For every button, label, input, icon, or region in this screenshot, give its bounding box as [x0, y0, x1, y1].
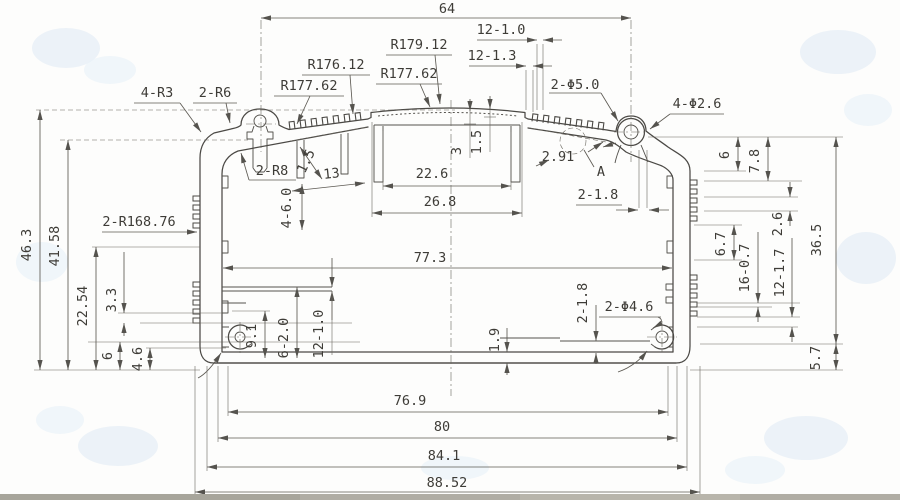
dim-label-3.3: 3.3 — [104, 288, 120, 312]
dim-label-slant-1.5: 1.5 — [294, 147, 319, 176]
dim-foot-5.7: 5.7 — [808, 344, 836, 370]
dim-label-77.3: 77.3 — [414, 250, 447, 266]
dim-label-12-1.3: 12-1.3 — [468, 48, 517, 64]
dim-label-84.1: 84.1 — [428, 448, 461, 464]
dim-slots-6-2.0: 6-2.0 — [276, 287, 297, 358]
dim-step-6-right: 6 — [717, 137, 738, 171]
dim-label-2-1.8-top: 2-1.8 — [578, 187, 619, 203]
dim-label-2-R168.76: 2-R168.76 — [102, 214, 175, 230]
engineering-drawing-page: 64 12-1.0 12-1.3 R179.12 R176.12 R177.62 — [0, 0, 900, 500]
scan-footer-strip — [0, 494, 900, 500]
dimensions-right: 6 7.8 2.6 36.5 5.7 6.7 16-0.7 — [648, 137, 843, 370]
detail-label-A: A — [597, 164, 605, 180]
dim-label-16-0.7: 16-0.7 — [737, 244, 753, 293]
dim-corner-holes-4-d2.6: 4-Φ2.6 — [650, 96, 724, 129]
dim-boss-height-9.1: 9.1 — [244, 311, 265, 358]
dim-label-2.91: 2.91 — [542, 149, 575, 165]
dim-height-46.3: 46.3 — [19, 110, 40, 370]
dim-label-R177.62-a: R177.62 — [281, 78, 338, 94]
dim-label-2-R6: 2-R6 — [199, 85, 232, 101]
extrusion-profile-drawing: 64 12-1.0 12-1.3 R179.12 R176.12 R177.62 — [0, 0, 900, 500]
dim-label-12-1.0-bottom: 12-1.0 — [311, 310, 327, 359]
dim-label-64: 64 — [439, 1, 455, 17]
dimensions-bottom-interior: 9.1 6-2.0 12-1.0 1.9 2-1.8 2-Φ4.6 — [232, 258, 661, 375]
dim-label-3: 3 — [449, 147, 465, 155]
dim-label-36.5: 36.5 — [809, 224, 825, 257]
dim-chamfer-4.6: 4.6 — [130, 347, 150, 371]
dim-label-R179.12: R179.12 — [391, 37, 448, 53]
dim-cavity-width-77.3: 77.3 — [223, 250, 672, 268]
dim-step-7.8: 7.8 — [747, 137, 768, 181]
dim-rib-3.3: 3.3 — [104, 252, 124, 336]
dim-label-R177.62-b: R177.62 — [381, 66, 438, 82]
dim-boss-radius-2-R8: 2-R8 — [241, 153, 296, 180]
dim-label-6-left: 6 — [100, 352, 116, 360]
dim-label-6-2.0: 6-2.0 — [276, 318, 292, 359]
dim-label-1.9: 1.9 — [487, 328, 503, 352]
dim-screw-holes-2-d4.6: 2-Φ4.6 — [599, 299, 661, 328]
dim-label-12-1.7: 12-1.7 — [772, 249, 788, 298]
top-fins-left — [289, 113, 361, 130]
dim-label-46.3: 46.3 — [19, 229, 35, 262]
left-wall-fins — [193, 196, 200, 323]
dim-label-80: 80 — [434, 419, 450, 435]
dim-label-R176.12: R176.12 — [308, 57, 365, 73]
dim-web-2-1.8-top: 2-1.8 — [576, 150, 669, 210]
dim-label-76.9: 76.9 — [394, 393, 427, 409]
dim-label-41.58: 41.58 — [47, 226, 63, 267]
dim-fin-pitch-12-1.3: 12-1.3 — [468, 48, 552, 112]
dim-radius-2-R6: 2-R6 — [193, 85, 237, 123]
dim-label-4-R3: 4-R3 — [141, 85, 174, 101]
dim-notch-6.7: 6.7 — [713, 225, 734, 260]
dimensions-top: 64 12-1.0 12-1.3 R179.12 R176.12 R177.62 — [134, 1, 724, 180]
dim-height-22.54: 22.54 — [75, 247, 96, 370]
dim-label-22.6: 22.6 — [416, 166, 449, 182]
dim-fins-12-1.0-bottom: 12-1.0 — [311, 258, 332, 358]
dim-width-88.52: 88.52 — [195, 475, 700, 492]
dim-label-6.7: 6.7 — [713, 232, 729, 256]
dim-width-80: 80 — [218, 419, 677, 438]
dimensions-bottom-widths: 76.9 80 84.1 88.52 — [195, 366, 700, 496]
dim-height-36.5: 36.5 — [809, 137, 836, 344]
dim-overall-top-64: 64 — [261, 1, 631, 18]
dim-label-13: 13 — [323, 165, 341, 183]
dim-label-9.1: 9.1 — [244, 324, 260, 348]
right-wall-fins — [690, 180, 697, 316]
dim-label-4-6.0: 4-6.0 — [279, 188, 295, 229]
dim-radius-R177.62-right: R177.62 — [376, 66, 442, 107]
dim-label-5.7: 5.7 — [808, 346, 824, 370]
profile-outline — [193, 108, 697, 363]
dim-wall-radius-2-R168.76: 2-R168.76 — [102, 214, 197, 232]
dim-fins-16-0.7: 16-0.7 — [737, 232, 758, 322]
dim-label-88.52: 88.52 — [427, 475, 468, 491]
dim-label-4-d2.6: 4-Φ2.6 — [673, 96, 722, 112]
dim-foot-6: 6 — [100, 342, 120, 370]
dim-fins-12-1.7: 12-1.7 — [772, 238, 792, 342]
dim-width-76.9: 76.9 — [228, 393, 668, 412]
dim-label-26.8: 26.8 — [424, 194, 457, 210]
dim-step-2.6: 2.6 — [770, 182, 790, 236]
dim-label-6-right: 6 — [717, 151, 733, 159]
dim-label-2-1.8-bottom: 2-1.8 — [575, 283, 591, 324]
dim-corner-radius-4-R3: 4-R3 — [134, 85, 201, 132]
dim-label-12-1.0-top: 12-1.0 — [477, 22, 526, 38]
dim-slant-fin-1.5: 1.5 — [294, 147, 322, 179]
dim-panel-inner-22.6: 22.6 — [383, 131, 511, 190]
dim-label-22.54: 22.54 — [75, 286, 91, 327]
dim-label-1.5: 1.5 — [469, 130, 485, 154]
dim-label-2-d4.6: 2-Φ4.6 — [605, 299, 654, 315]
dim-label-4.6: 4.6 — [130, 347, 146, 371]
dim-label-2-d5.0: 2-Φ5.0 — [551, 77, 600, 93]
dim-slots-4-6.0: 4-6.0 — [279, 184, 302, 230]
dim-label-2-R8: 2-R8 — [256, 163, 289, 179]
leader-bottom-right-boss — [618, 351, 647, 372]
dim-label-7.8: 7.8 — [747, 149, 763, 173]
dim-label-2.6: 2.6 — [770, 212, 786, 236]
